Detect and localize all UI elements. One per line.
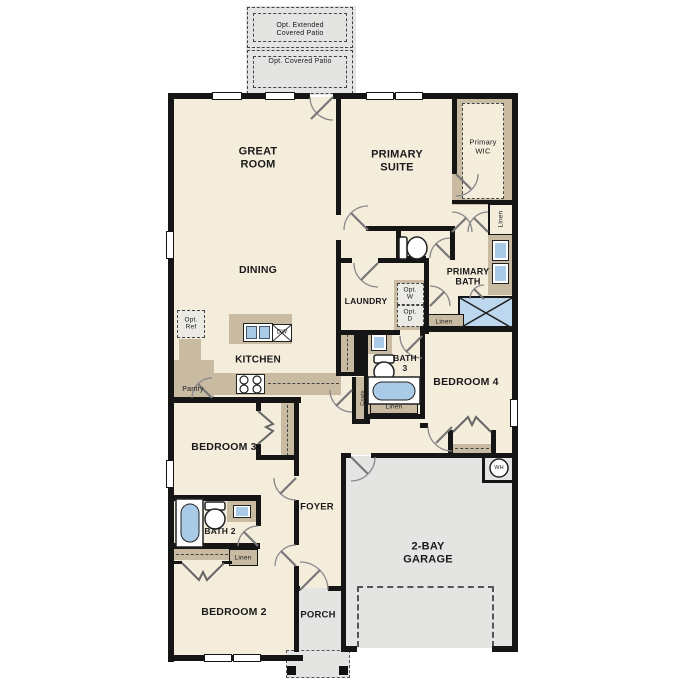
wall-foyer-lower xyxy=(294,566,299,588)
wall-bath2-right xyxy=(256,495,261,526)
shower xyxy=(458,296,514,330)
wall-laundry-top-right xyxy=(378,258,428,263)
wall-right xyxy=(512,93,518,652)
window xyxy=(510,399,518,427)
window xyxy=(166,460,174,488)
window xyxy=(204,654,232,662)
bedroom4-shelf-dash xyxy=(455,448,489,449)
wall-coats-bottom xyxy=(352,419,370,424)
window xyxy=(233,654,261,662)
dishwasher-label: DW xyxy=(277,330,287,337)
wall-laundry-right xyxy=(424,258,429,334)
porch-post-right xyxy=(339,666,348,675)
wall-hall-stub xyxy=(336,372,356,376)
wall-garage-left xyxy=(341,453,346,652)
foyer-floor xyxy=(298,455,345,588)
wall-foyer-upper xyxy=(294,399,299,476)
stove xyxy=(236,374,265,394)
coats-label: Coats xyxy=(360,390,366,405)
wall-plumbing-mass xyxy=(354,330,368,376)
wall-porch-left xyxy=(294,586,299,652)
bath3-sink-basin xyxy=(374,337,384,348)
wall-garage-bottom-right xyxy=(492,646,518,652)
wall-bedroom3-closet-bottom xyxy=(256,455,296,460)
porch-label: PORCH xyxy=(300,611,335,622)
wall-great-primary-stub xyxy=(336,240,341,330)
bath3-label: BATH 3 xyxy=(393,354,417,374)
wall-porch-top-left xyxy=(294,586,300,591)
wall-primary-bottom xyxy=(366,226,454,231)
wall-bath3-right xyxy=(420,330,425,418)
wall-wic-left xyxy=(452,97,457,174)
pantry-label: Pantry xyxy=(182,386,203,394)
great-room-label: GREAT ROOM xyxy=(239,145,278,170)
extended-patio-label: Opt. Extended Covered Patio xyxy=(276,22,323,38)
wall-coats-left xyxy=(352,377,356,421)
wall-top-right xyxy=(333,93,518,99)
wall-laundry-top-left xyxy=(336,258,352,263)
covered-patio-label: Opt. Covered Patio xyxy=(268,58,331,66)
island-sink-basin-left xyxy=(246,326,257,339)
garage-door-outline xyxy=(357,586,494,647)
foyer-label: FOYER xyxy=(300,503,334,514)
wall-garage-top-right xyxy=(371,453,518,458)
wall-porch-top-right xyxy=(328,586,344,591)
opt-washer-label: Opt. W xyxy=(403,287,416,302)
kitchen-cabinet-left xyxy=(179,339,201,360)
wall-bath2-top xyxy=(168,495,260,501)
wall-foyer-mid xyxy=(294,500,299,545)
window xyxy=(166,231,174,259)
primary-bath-label: PRIMARY BATH xyxy=(447,267,490,288)
primary-sink-1-basin xyxy=(495,243,506,258)
wall-toilet-room-left xyxy=(396,226,401,260)
kitchen-counter xyxy=(213,373,341,395)
hall-closet-dash xyxy=(347,334,348,370)
counter-dash-line xyxy=(268,383,339,384)
wall-bedroom4-hall xyxy=(420,423,428,428)
water-heater-label: WH xyxy=(494,465,504,471)
linen-bath2-label: Linen xyxy=(235,554,252,561)
wall-bedroom3-closet-stub-top xyxy=(256,399,261,411)
window xyxy=(395,92,423,100)
wall-toilet-room-right xyxy=(450,226,455,260)
wall-bath4-top xyxy=(420,326,514,332)
garage-label: 2-BAY GARAGE xyxy=(403,540,452,565)
window xyxy=(265,92,295,100)
dining-label: DINING xyxy=(239,264,277,276)
wall-bath2-bottom xyxy=(168,543,260,549)
bedroom3-shelf-dash xyxy=(287,405,288,456)
bedroom2-shelf-dash xyxy=(176,554,228,555)
opt-dryer-label: Opt. D xyxy=(403,309,416,324)
wall-kitchen-bedroom3 xyxy=(168,397,301,403)
linen-wic-label: Linen xyxy=(497,211,504,228)
porch-post-left xyxy=(287,666,296,675)
wall-bath3-bottom xyxy=(364,414,425,419)
linen-primary-bath-label: Linen xyxy=(436,318,453,325)
window xyxy=(212,92,242,100)
wall-left xyxy=(168,93,174,662)
bath2-sink-basin xyxy=(236,507,248,516)
kitchen-label: KITCHEN xyxy=(235,354,281,366)
wall-bedroom2-closet-left xyxy=(174,561,182,564)
bedroom3-label: BEDROOM 3 xyxy=(191,441,256,453)
primary-sink-2-basin xyxy=(495,266,506,281)
opt-ref-label: Opt. Ref xyxy=(184,317,197,332)
laundry-label: LAUNDRY xyxy=(345,297,388,307)
bedroom4-label: BEDROOM 4 xyxy=(433,376,498,388)
bedroom2-label: BEDROOM 2 xyxy=(201,606,266,618)
wall-great-primary xyxy=(336,93,341,215)
floor-plan: Opt. Extended Covered Patio Opt. Covered… xyxy=(0,0,687,687)
wall-laundry-bottom xyxy=(336,330,400,335)
primary-suite-label: PRIMARY SUITE xyxy=(371,148,423,173)
primary-wic-label: Primary WIC xyxy=(469,138,496,155)
wall-bedroom3-closet-stub-bottom xyxy=(256,444,261,458)
window xyxy=(366,92,394,100)
island-sink-basin-right xyxy=(259,326,270,339)
bath2-label: BATH 2 xyxy=(204,527,235,537)
wall-kitchen-hall xyxy=(336,330,341,376)
wall-wic-bottom xyxy=(452,200,514,204)
linen-bath3-label: Linen xyxy=(386,403,403,410)
wall-bedroom2-closet-right xyxy=(222,561,232,564)
